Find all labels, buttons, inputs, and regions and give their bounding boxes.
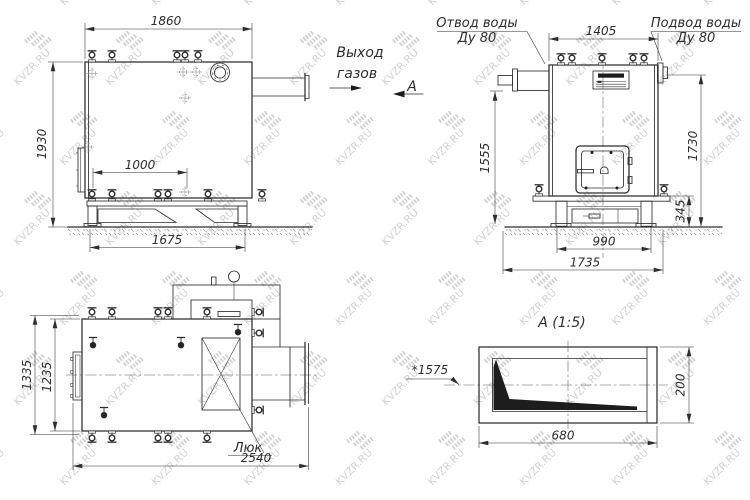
watermark-text: KVZR.RU (150, 447, 191, 488)
valve-icon (108, 431, 116, 442)
dim-text: 1735 (570, 256, 601, 270)
section-letter: А (406, 79, 417, 95)
watermark-text: KVZR.RU (702, 447, 743, 488)
valve-icon (88, 51, 96, 62)
watermark-logo-icon (254, 267, 282, 294)
watermark-logo-icon (162, 267, 190, 294)
watermark-text: KVZR.RU (150, 127, 191, 168)
dim-text: 1675 (152, 233, 183, 247)
watermark-logo-icon (438, 267, 466, 294)
valve-icon (203, 431, 211, 442)
ground-side (68, 227, 312, 236)
dim-text: 1405 (586, 24, 617, 38)
watermark-logo-icon (116, 347, 144, 374)
valve-icon (258, 190, 266, 201)
dim-text: 2540 (241, 451, 272, 465)
watermark-logo-icon (714, 107, 742, 134)
watermark-text: KVZR.RU (334, 447, 375, 488)
valve-icon (101, 408, 108, 419)
center-mark-icon (177, 66, 189, 78)
valve-icon (154, 190, 162, 201)
watermark-logo-icon (530, 107, 558, 134)
watermark-logo-icon (208, 27, 236, 54)
watermark-logo-icon (116, 187, 144, 214)
watermark-text: KVZR.RU (702, 0, 743, 8)
watermark-logo-icon (24, 27, 52, 54)
valve-icon (173, 51, 181, 62)
section-arrow-icon (393, 91, 405, 98)
dim-side-drain-span: 1000 (93, 158, 187, 188)
watermark-logo-icon (438, 427, 466, 454)
valve-icon (178, 338, 185, 349)
dim-text: *1575 (412, 363, 449, 377)
watermark-text: KVZR.RU (564, 367, 605, 408)
watermark-text: KVZR.RU (656, 47, 697, 88)
watermark-logo-icon (576, 187, 604, 214)
watermark-logo-icon (24, 187, 52, 214)
watermark-logo-icon (300, 347, 328, 374)
gas-outlet-label: Выход газов (330, 45, 384, 91)
nameplate (593, 71, 629, 89)
water-inlet-text-1: Подвод воды (651, 16, 741, 31)
watermark-text: KVZR.RU (518, 0, 559, 8)
water-outlet-nozzle (498, 69, 549, 91)
watermark-text: KVZR.RU (334, 0, 375, 8)
valve-icon (235, 325, 242, 336)
watermark-logo-icon (300, 27, 328, 54)
watermark-logo-icon (438, 107, 466, 134)
water-outlet-text-1: Отвод воды (436, 16, 517, 31)
watermark-logo-icon (346, 107, 374, 134)
watermark-text: KVZR.RU (426, 127, 467, 168)
watermark-text: KVZR.RU (58, 0, 99, 8)
section-view: А (1:5) *1575 680 200 (406, 315, 694, 448)
watermark-logo-icon (484, 187, 512, 214)
watermark-text: KVZR.RU (610, 287, 651, 328)
drain-valves-side (88, 190, 266, 201)
water-outlet-text-2: Ду 80 (457, 31, 497, 46)
dim-front-base-width: 1735 (503, 231, 663, 274)
watermark-logo-icon (714, 267, 742, 294)
watermark-logo-icon (346, 427, 374, 454)
watermark-logo-icon (392, 187, 420, 214)
furnace-door-front (576, 146, 632, 193)
valve-icon (557, 54, 565, 65)
door-lock-icon (601, 167, 609, 174)
watermark-logo-icon (208, 347, 236, 374)
top-valves-side (88, 51, 202, 62)
dim-text: 1000 (125, 158, 156, 172)
watermark-logo-icon (576, 347, 604, 374)
water-inlet-text-2: Ду 80 (676, 31, 716, 46)
watermark-logo-icon (622, 427, 650, 454)
watermark-text: KVZR.RU (0, 127, 7, 168)
valve-icon (164, 190, 172, 201)
watermark-text: KVZR.RU (426, 447, 467, 488)
furnace-door-plan (71, 352, 83, 400)
valve-icon (154, 431, 162, 442)
watermark-text: KVZR.RU (12, 47, 53, 88)
dim-text: 200 (674, 373, 688, 396)
watermark-logo-icon (668, 347, 696, 374)
dim-text: 1730 (686, 130, 700, 161)
valve-icon (108, 190, 116, 201)
valve-icon (660, 185, 668, 196)
watermark-text: KVZR.RU (288, 47, 329, 88)
gas-outlet-text-1: Выход (336, 45, 383, 61)
flow-arrow-icon (351, 85, 362, 91)
watermark-text: KVZR.RU (610, 0, 651, 8)
valve-icon (181, 51, 189, 62)
valve-icon (88, 190, 96, 201)
watermark-text: KVZR.RU (702, 287, 743, 328)
watermark-logo-icon (714, 427, 742, 454)
valve-icon (640, 54, 648, 65)
section-title: А (1:5) (537, 315, 585, 331)
dim-text: 1860 (151, 14, 182, 28)
valve-icon (90, 338, 97, 349)
valve-icon (252, 406, 263, 414)
watermark-text: KVZR.RU (242, 0, 283, 8)
valve-icon (194, 51, 202, 62)
dim-text: 345 (674, 200, 688, 223)
watermark-text: KVZR.RU (426, 287, 467, 328)
flange (218, 312, 240, 317)
dim-text: 1555 (478, 143, 492, 174)
center-mark-icon (179, 186, 191, 198)
dim-front-base-height: 345 (660, 196, 694, 227)
watermark-text: KVZR.RU (610, 447, 651, 488)
watermark-logo-icon (622, 267, 650, 294)
door-handle (578, 170, 594, 173)
watermark-logo-icon (346, 267, 374, 294)
watermark-text: KVZR.RU (702, 127, 743, 168)
watermark-text: KVZR.RU (104, 367, 145, 408)
watermark-text: KVZR.RU (150, 0, 191, 8)
watermark-logo-icon (254, 107, 282, 134)
watermark-text: KVZR.RU (334, 127, 375, 168)
dim-text: 1235 (40, 362, 54, 393)
watermark-text: KVZR.RU (426, 0, 467, 8)
watermark-logo-icon (530, 267, 558, 294)
water-outlet-label: Отвод воды Ду 80 (436, 16, 545, 64)
valve-icon (568, 54, 576, 65)
watermark-logo-icon (300, 187, 328, 214)
rail-valves-front (535, 185, 668, 196)
gas-outlet-text-2: газов (337, 66, 377, 82)
dim-front-outlet-height: 1555 (478, 91, 503, 224)
watermark-logo-icon (392, 27, 420, 54)
watermark-text: KVZR.RU (472, 47, 513, 88)
dim-text: 990 (593, 235, 616, 249)
watermark-logo-icon (622, 107, 650, 134)
valve-icon (204, 190, 212, 201)
watermark-logo-icon (162, 107, 190, 134)
watermark-logo-icon (70, 267, 98, 294)
watermark-text: KVZR.RU (58, 447, 99, 488)
valve-icon (203, 308, 211, 319)
watermark-text: KVZR.RU (334, 287, 375, 328)
watermark-text: KVZR.RU (610, 127, 651, 168)
center-mark-icon (179, 92, 191, 104)
dim-text: 1930 (35, 128, 49, 159)
top-valves-front (557, 54, 648, 65)
watermark-text: KVZR.RU (0, 0, 7, 8)
section-view-mark: А (393, 79, 423, 97)
valve-icon (252, 329, 263, 337)
dim-text: 1335 (20, 360, 34, 391)
dim-text: 680 (552, 429, 575, 443)
chimney-stub-icon (229, 271, 240, 282)
valve-icon (108, 308, 116, 319)
drawing-canvas: KVZR.RUKVZR.RUKVZR.RUKVZR.RUKVZR.RUKVZR.… (0, 0, 750, 500)
watermark-logo-icon (70, 107, 98, 134)
watermark-text: KVZR.RU (12, 207, 53, 248)
center-mark-icon (86, 68, 98, 80)
watermark-logo-icon (116, 27, 144, 54)
boiler-drawing: KVZR.RUKVZR.RUKVZR.RUKVZR.RUKVZR.RUKVZR.… (0, 0, 750, 500)
watermark-text: KVZR.RU (242, 127, 283, 168)
watermark-text: KVZR.RU (0, 447, 7, 488)
valve-icon (108, 51, 116, 62)
watermark-text: KVZR.RU (0, 287, 7, 328)
watermark-logo-icon (208, 187, 236, 214)
valve-icon (88, 308, 96, 319)
watermark-text: KVZR.RU (242, 287, 283, 328)
valve-icon (629, 54, 637, 65)
watermark-text: KVZR.RU (380, 207, 421, 248)
watermark-text: KVZR.RU (518, 447, 559, 488)
watermark-text: KVZR.RU (196, 47, 237, 88)
valve-icon (535, 185, 543, 196)
